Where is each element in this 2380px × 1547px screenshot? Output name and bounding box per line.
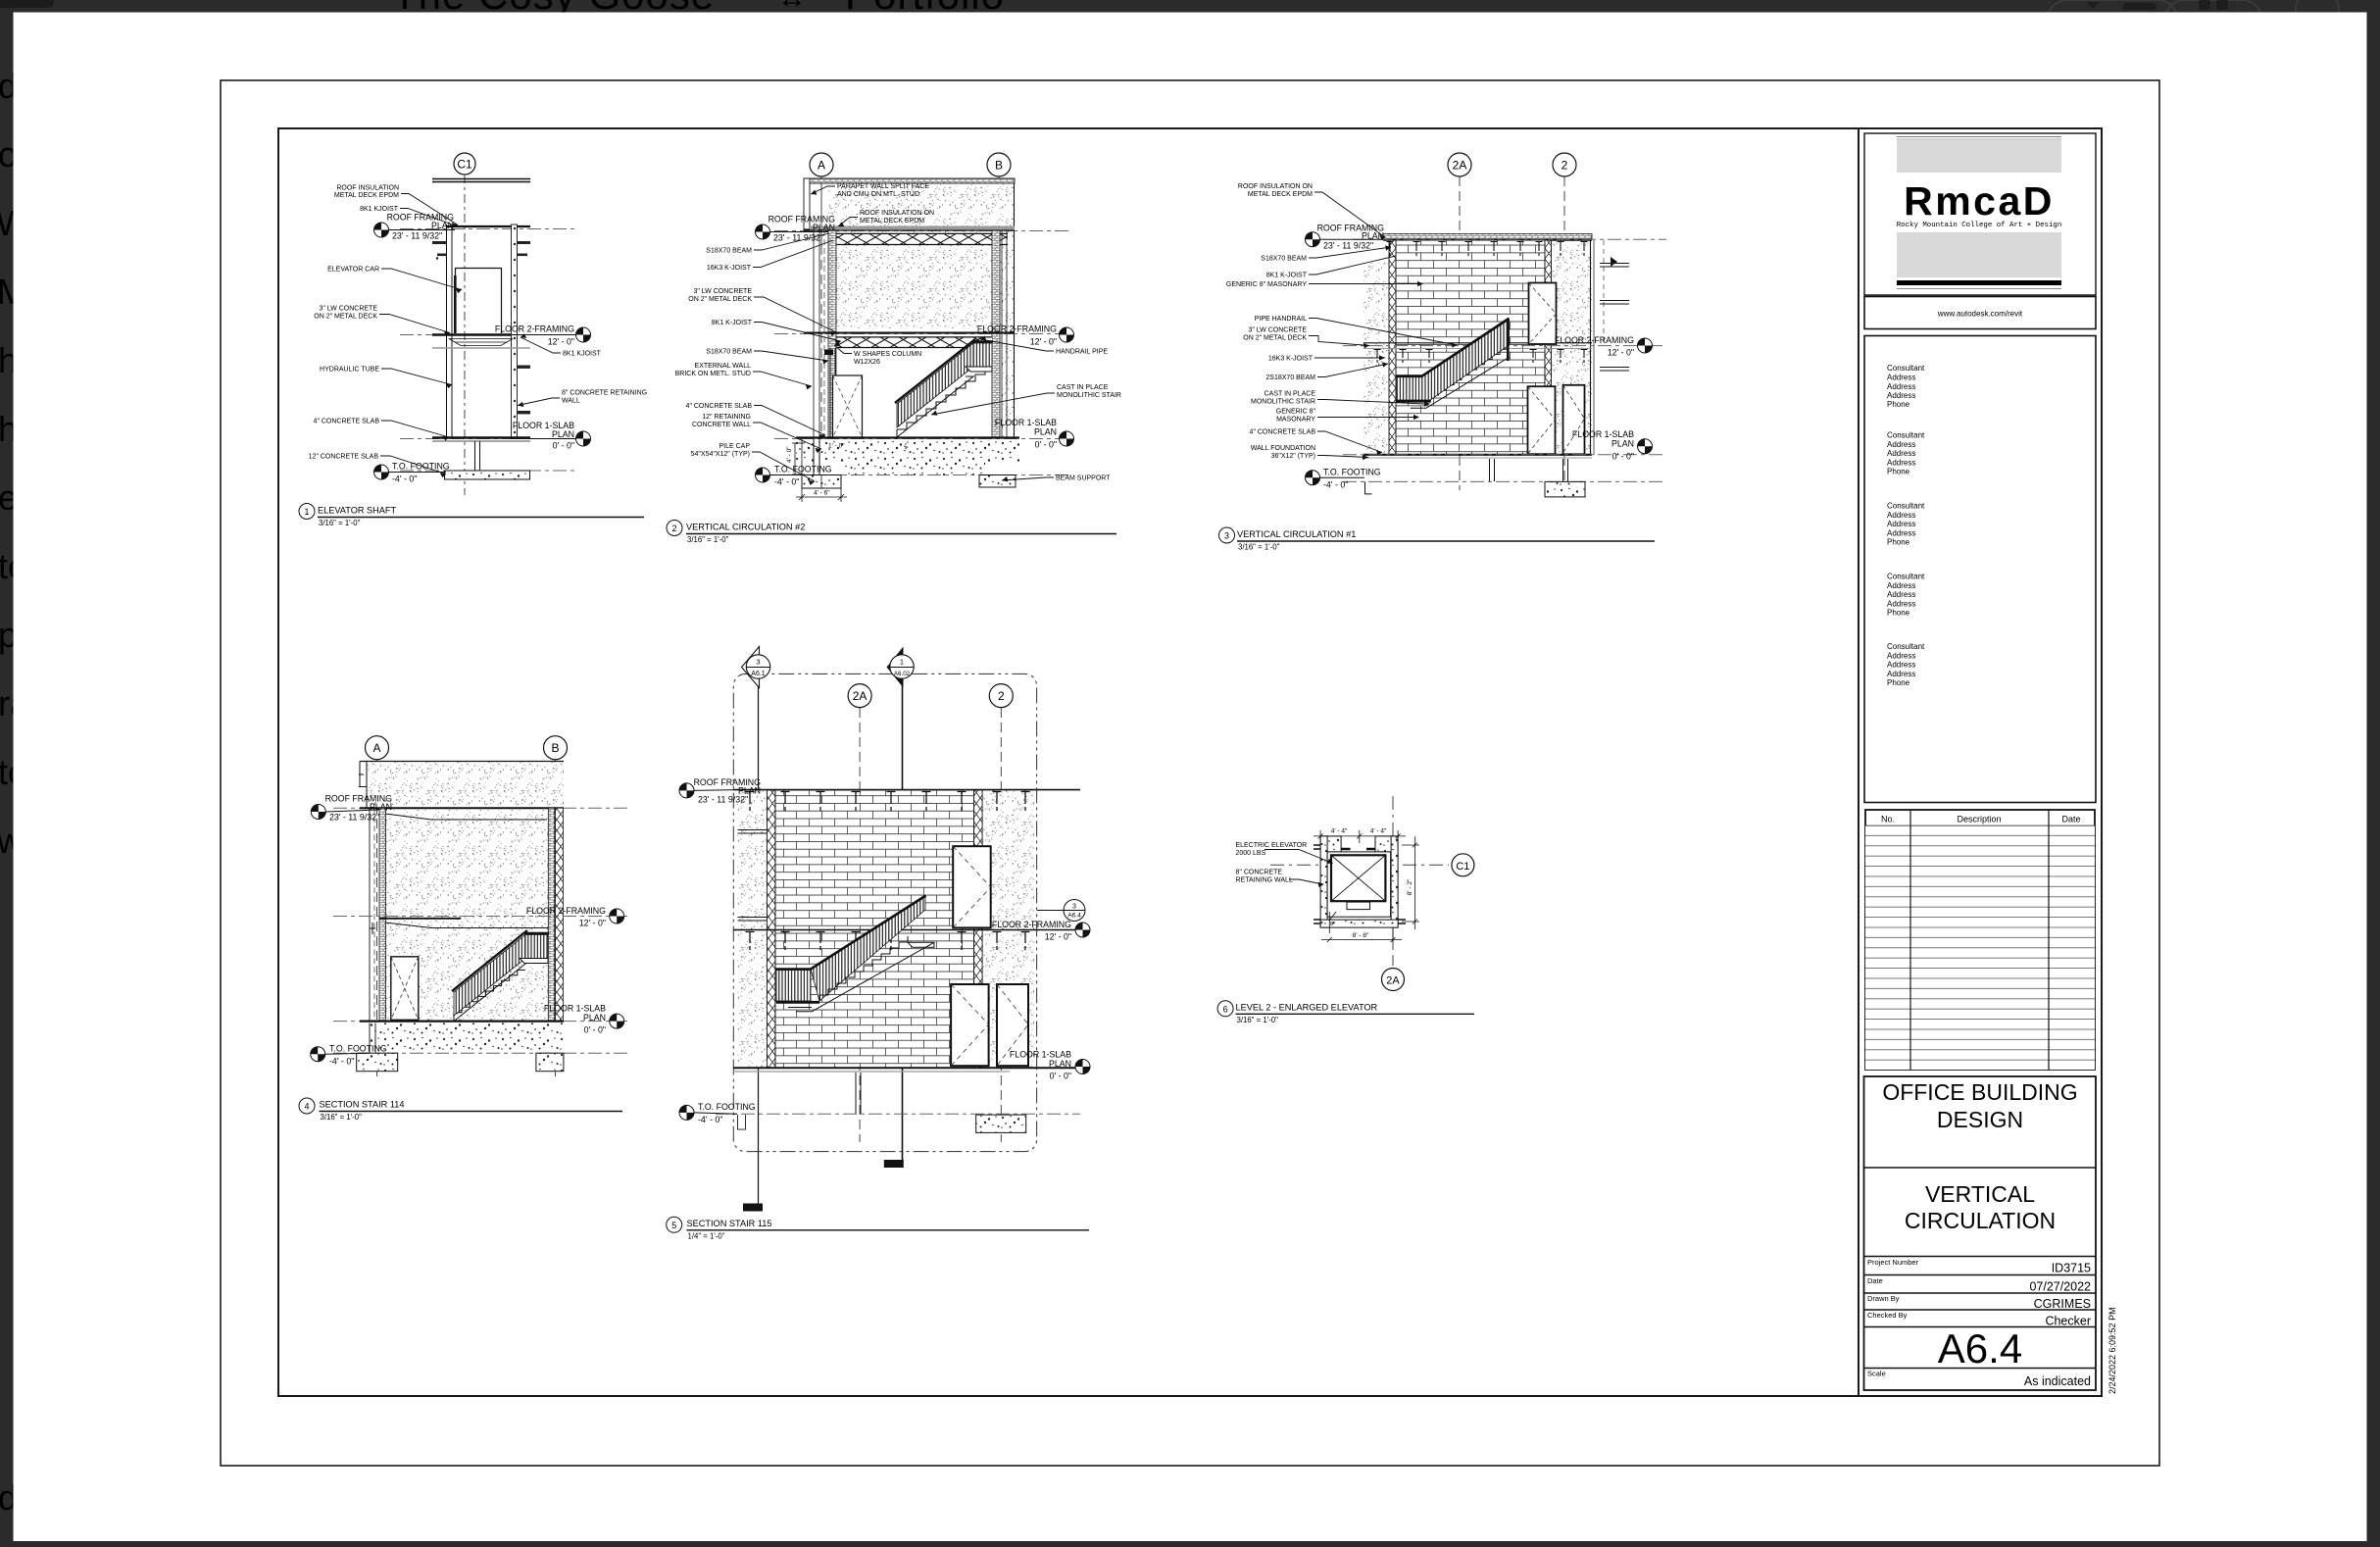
svg-text:WALL FOUNDATION: WALL FOUNDATION [1251,445,1315,452]
svg-text:C1: C1 [457,158,472,172]
svg-text:1: 1 [304,507,309,517]
svg-text:As indicated: As indicated [2024,1374,2091,1388]
svg-text:3" LW CONCRETE: 3" LW CONCRETE [1248,327,1307,334]
svg-text:2/24/2022 6:09:52 PM: 2/24/2022 6:09:52 PM [2107,1307,2117,1394]
svg-text:3/16" = 1'-0": 3/16" = 1'-0" [319,519,361,527]
svg-text:CAST IN PLACE: CAST IN PLACE [1057,384,1109,391]
svg-text:Drawn By: Drawn By [1867,1294,1900,1303]
svg-text:Date: Date [1867,1276,1883,1285]
svg-text:Phone: Phone [1887,678,1910,687]
svg-text:FLOOR 1-SLAB: FLOOR 1-SLAB [1572,429,1634,439]
svg-text:4" CONCRETE SLAB: 4" CONCRETE SLAB [314,419,380,425]
svg-text:12' - 0": 12' - 0" [1608,348,1634,358]
svg-text:Address: Address [1887,590,1915,599]
svg-text:5: 5 [671,1221,676,1230]
svg-text:B: B [551,741,559,755]
svg-text:2: 2 [671,524,676,533]
svg-text:2S18X70 BEAM: 2S18X70 BEAM [1265,374,1315,381]
svg-text:MASONARY: MASONARY [1276,417,1315,424]
svg-text:FLOOR 2-FRAMING: FLOOR 2-FRAMING [495,324,574,334]
svg-text:8": 8" [1330,922,1335,927]
svg-text:Address: Address [1887,520,1915,528]
svg-text:RmcaD: RmcaD [1904,178,2055,224]
svg-text:GENERIC 8": GENERIC 8" [1276,409,1316,416]
svg-text:Address: Address [1887,529,1915,538]
svg-text:Address: Address [1887,600,1915,609]
svg-text:Address: Address [1887,511,1915,520]
svg-text:VERTICAL: VERTICAL [1925,1181,2035,1207]
svg-text:METAL DECK EPDM: METAL DECK EPDM [1248,191,1313,198]
svg-text:2A: 2A [1386,975,1400,987]
svg-text:FLOOR 1-SLAB: FLOOR 1-SLAB [995,418,1057,427]
svg-text:Address: Address [1887,449,1915,458]
svg-text:3/16" = 1'-0": 3/16" = 1'-0" [321,1113,363,1122]
svg-text:4: 4 [304,1102,309,1112]
svg-text:8K1 K-JOIST: 8K1 K-JOIST [712,320,753,326]
svg-text:54"X54"X12" (TYP): 54"X54"X12" (TYP) [691,451,750,458]
svg-text:EXTERNAL WALL: EXTERNAL WALL [695,363,752,370]
svg-text:SECTION STAIR 114: SECTION STAIR 114 [320,1100,405,1110]
svg-text:8K1 KJOIST: 8K1 KJOIST [360,206,399,213]
svg-text:DESIGN: DESIGN [1937,1107,2023,1132]
svg-text:A6.02: A6.02 [894,671,911,677]
svg-text:C1: C1 [1456,861,1469,873]
svg-text:0' - 0": 0' - 0" [584,1025,606,1035]
svg-text:ID3715: ID3715 [2052,1262,2091,1275]
svg-text:GENERIC 8" MASONARY: GENERIC 8" MASONARY [1226,281,1307,288]
svg-text:3/16" = 1'-0": 3/16" = 1'-0" [687,535,729,544]
svg-text:Address: Address [1887,661,1915,670]
svg-text:PLAN: PLAN [1034,427,1057,437]
svg-text:3/16" = 1'-0": 3/16" = 1'-0" [1238,543,1280,552]
svg-text:MONOLITHIC STAIR: MONOLITHIC STAIR [1057,392,1121,399]
svg-text:CIRCULATION: CIRCULATION [1905,1208,2056,1233]
svg-text:12' - 0": 12' - 0" [1045,932,1071,942]
svg-text:A6.4: A6.4 [1067,913,1081,920]
svg-text:-4' - 0": -4' - 0" [392,474,417,484]
svg-text:ELECTRIC ELEVATOR: ELECTRIC ELEVATOR [1236,842,1308,849]
svg-text:ELEVATOR SHAFT: ELEVATOR SHAFT [318,506,397,516]
svg-text:Address: Address [1887,382,1915,391]
svg-text:8K1 KJOIST: 8K1 KJOIST [563,351,602,358]
svg-text:Description: Description [1957,815,2001,824]
svg-text:FLOOR 2-FRAMING: FLOOR 2-FRAMING [977,324,1057,334]
svg-text:07/27/2022: 07/27/2022 [2029,1280,2091,1294]
svg-text:Address: Address [1887,459,1915,468]
svg-text:FLOOR 2-FRAMING: FLOOR 2-FRAMING [526,906,606,916]
svg-text:PLAN: PLAN [1049,1059,1071,1069]
svg-text:Consultant: Consultant [1887,502,1925,511]
svg-text:16K3 K-JOIST: 16K3 K-JOIST [1268,356,1314,363]
svg-text:Consultant: Consultant [1887,364,1925,373]
svg-text:23' - 11 9/32": 23' - 11 9/32" [329,813,379,823]
svg-text:AND CMU ON MTL. STUD: AND CMU ON MTL. STUD [837,191,919,198]
svg-text:Phone: Phone [1887,468,1910,476]
svg-text:2A: 2A [1453,159,1467,173]
svg-text:3/16" = 1'-0": 3/16" = 1'-0" [1237,1016,1279,1024]
svg-text:W12X26: W12X26 [854,359,880,366]
svg-text:W SHAPES COLUMN: W SHAPES COLUMN [854,351,921,358]
svg-text:ROOF INSULATION ON: ROOF INSULATION ON [860,210,934,217]
svg-text:PLAN: PLAN [813,223,835,232]
svg-text:Consultant: Consultant [1887,431,1925,440]
svg-text:A6.1: A6.1 [751,671,766,677]
svg-text:OFFICE BUILDING: OFFICE BUILDING [1882,1079,2077,1105]
svg-text:ON 2" METAL DECK: ON 2" METAL DECK [688,296,752,303]
svg-text:8' - 2": 8' - 2" [1407,878,1413,895]
svg-text:Phone: Phone [1887,609,1910,618]
svg-text:Address: Address [1887,374,1915,382]
svg-text:Address: Address [1887,670,1915,678]
svg-text:HANDRAIL PIPE: HANDRAIL PIPE [1056,349,1108,356]
svg-text:6: 6 [1223,1004,1228,1014]
svg-text:METAL DECK EPDM: METAL DECK EPDM [334,192,399,199]
svg-text:12' - 0": 12' - 0" [1030,337,1057,347]
svg-text:PLAN: PLAN [552,429,574,439]
svg-text:Checker: Checker [2045,1315,2091,1328]
svg-text:T.O. FOOTING: T.O. FOOTING [698,1102,756,1112]
svg-text:Consultant: Consultant [1887,573,1925,581]
svg-text:1/4" = 1'-0": 1/4" = 1'-0" [688,1231,725,1240]
svg-text:T.O. FOOTING: T.O. FOOTING [774,465,832,474]
svg-text:CGRIMES: CGRIMES [2034,1297,2091,1311]
svg-text:ON 2" METAL DECK: ON 2" METAL DECK [314,314,377,321]
svg-text:-4' - 0": -4' - 0" [698,1115,722,1124]
svg-text:23' - 11 9/32": 23' - 11 9/32" [1323,241,1373,251]
svg-text:CAST IN PLACE: CAST IN PLACE [1264,391,1316,398]
svg-text:A: A [818,159,825,173]
svg-text:8' - 8": 8' - 8" [1353,932,1369,939]
svg-text:4' - 4": 4' - 4" [1370,828,1387,835]
svg-text:12" RETAINING: 12" RETAINING [702,414,751,421]
svg-text:FLOOR 1-SLAB: FLOOR 1-SLAB [1010,1050,1071,1060]
svg-text:1' - 0": 1' - 0" [828,443,845,450]
svg-text:FLOOR 1-SLAB: FLOOR 1-SLAB [544,1004,606,1014]
svg-text:3" LW CONCRETE: 3" LW CONCRETE [693,288,752,295]
svg-text:2A: 2A [853,689,868,703]
svg-text:1: 1 [900,658,904,667]
svg-text:4' - 6": 4' - 6" [814,490,830,497]
svg-text:12' - 0": 12' - 0" [579,919,606,928]
svg-text:Date: Date [2061,815,2080,824]
svg-text:Consultant: Consultant [1887,642,1925,651]
svg-text:12' - 0": 12' - 0" [548,337,574,347]
svg-text:www.autodesk.com/revit: www.autodesk.com/revit [1937,310,2023,319]
svg-text:2: 2 [998,689,1005,703]
svg-text:A: A [372,741,380,755]
svg-text:S18X70 BEAM: S18X70 BEAM [706,349,752,356]
svg-text:Address: Address [1887,581,1915,590]
svg-text:-4' - 0": -4' - 0" [329,1057,354,1067]
svg-text:0' - 0": 0' - 0" [1050,1072,1071,1081]
svg-text:PARAPET WALL SPLIT FACE: PARAPET WALL SPLIT FACE [837,183,929,190]
svg-text:PILE CAP: PILE CAP [719,443,750,450]
svg-text:PLAN: PLAN [370,802,392,812]
svg-text:FLOOR 2-FRAMING: FLOOR 2-FRAMING [992,920,1071,929]
svg-text:T.O. FOOTING: T.O. FOOTING [329,1044,387,1054]
svg-text:ELEVATOR CAR: ELEVATOR CAR [327,267,379,274]
svg-text:PIPE HANDRAIL: PIPE HANDRAIL [1255,316,1307,323]
svg-text:PLAN: PLAN [583,1013,606,1023]
svg-text:BRICK ON METL. STUD: BRICK ON METL. STUD [675,371,751,377]
svg-text:Project Number: Project Number [1867,1258,1919,1267]
svg-text:0' - 0": 0' - 0" [553,441,574,451]
svg-text:WALL: WALL [562,398,580,405]
svg-text:Rocky Mountain College of Art: Rocky Mountain College of Art + Design [1897,222,2062,229]
svg-text:B: B [995,159,1003,173]
svg-text:ROOF INSULATION ON: ROOF INSULATION ON [1238,183,1313,190]
svg-text:3: 3 [1224,531,1229,541]
svg-text:8K1 K-JOIST: 8K1 K-JOIST [1266,273,1308,279]
svg-text:12" CONCRETE SLAB: 12" CONCRETE SLAB [309,454,379,461]
svg-text:RETAINING WALL: RETAINING WALL [1236,877,1293,884]
svg-text:2: 2 [1562,159,1568,173]
svg-text:Address: Address [1887,391,1915,400]
svg-text:BEAM SUPPORT: BEAM SUPPORT [1056,475,1111,482]
svg-text:S18X70 BEAM: S18X70 BEAM [1261,256,1307,263]
svg-text:Address: Address [1887,652,1915,661]
svg-text:HYDRAULIC TUBE: HYDRAULIC TUBE [320,367,379,374]
svg-text:Scale: Scale [1867,1370,1886,1378]
svg-text:No.: No. [1881,815,1895,824]
svg-text:23' - 11 9/32": 23' - 11 9/32" [392,231,442,241]
svg-text:SECTION STAIR 115: SECTION STAIR 115 [687,1219,772,1228]
svg-text:ON 2" METAL DECK: ON 2" METAL DECK [1243,335,1307,342]
svg-text:3: 3 [1072,904,1076,911]
svg-text:FLOOR 2-FRAMING: FLOOR 2-FRAMING [1555,335,1634,345]
svg-text:4' - 4": 4' - 4" [1331,828,1348,835]
svg-text:CONCRETE WALL: CONCRETE WALL [692,422,751,428]
svg-text:2000 LBS: 2000 LBS [1236,850,1266,857]
svg-text:Checked By: Checked By [1867,1311,1908,1320]
svg-text:16K3 K-JOIST: 16K3 K-JOIST [707,265,752,272]
svg-text:LEVEL 2 - ENLARGED ELEVATOR: LEVEL 2 - ENLARGED ELEVATOR [1236,1002,1378,1012]
svg-text:PLAN: PLAN [1611,439,1634,449]
svg-text:MONOLITHIC STAIR: MONOLITHIC STAIR [1251,399,1315,406]
svg-text:ROOF INSULATION: ROOF INSULATION [336,185,399,192]
svg-text:8" CONCRETE: 8" CONCRETE [1236,870,1283,876]
svg-text:VERTICAL CIRCULATION #1: VERTICAL CIRCULATION #1 [1237,529,1356,539]
svg-text:Phone: Phone [1887,538,1910,547]
svg-text:PLAN: PLAN [431,221,454,230]
svg-text:Address: Address [1887,440,1915,449]
svg-text:3: 3 [756,658,760,667]
svg-text:0' - 0": 0' - 0" [1612,452,1634,462]
svg-text:4" CONCRETE SLAB: 4" CONCRETE SLAB [1250,429,1316,436]
svg-text:-4' - 0": -4' - 0" [774,477,799,487]
svg-text:36"X12" (TYP): 36"X12" (TYP) [1271,453,1315,460]
svg-text:Phone: Phone [1887,400,1910,409]
svg-text:VERTICAL CIRCULATION #2: VERTICAL CIRCULATION #2 [686,523,805,532]
svg-text:4' - 0": 4' - 0" [786,446,793,463]
svg-text:T.O. FOOTING: T.O. FOOTING [1323,468,1381,477]
svg-text:METAL DECK EPDM: METAL DECK EPDM [860,218,924,225]
svg-text:A6.4: A6.4 [1938,1325,2022,1372]
svg-text:S18X70 BEAM: S18X70 BEAM [706,248,752,255]
svg-text:23' - 11 9/32": 23' - 11 9/32" [698,795,748,805]
svg-text:8" CONCRETE RETAINING: 8" CONCRETE RETAINING [562,390,647,397]
svg-text:-4' - 0": -4' - 0" [1323,480,1348,490]
svg-text:3" LW CONCRETE: 3" LW CONCRETE [319,306,377,313]
svg-text:4" CONCRETE SLAB: 4" CONCRETE SLAB [686,403,753,410]
svg-text:0' - 0": 0' - 0" [1035,440,1057,450]
